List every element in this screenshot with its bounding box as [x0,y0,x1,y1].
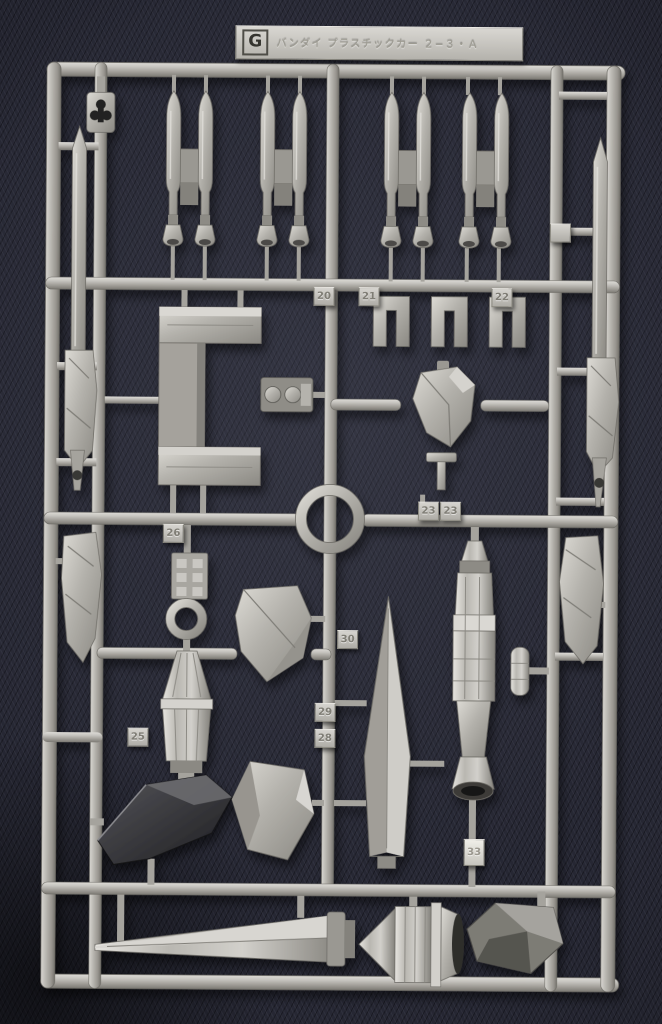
gate-tag-29: 29 [315,703,336,722]
gate-tag-23a: 23 [418,502,439,521]
runner-wrapper: G バンダイ プラスチックカー ２−３・Ａ 20 21 22 23 23 26 … [0,0,662,1024]
gate-tag-28: 28 [314,729,335,748]
gate-tag-26: 26 [163,524,184,543]
gate-tag-23b: 23 [440,502,461,521]
runner-embossed-text: バンダイ プラスチックカー ２−３・Ａ [276,35,479,51]
gate-tag-30: 30 [337,630,358,649]
gate-tag-33: 33 [464,839,485,866]
label-overlay: G バンダイ プラスチックカー ２−３・Ａ 20 21 22 23 23 26 … [0,0,662,1024]
gate-tag-25: 25 [127,728,148,747]
gate-tag-21: 21 [358,287,379,306]
runner-letter: G [242,29,268,55]
gate-tag-22: 22 [491,288,512,307]
gate-tag-blank [550,224,571,243]
photo-background: G バンダイ プラスチックカー ２−３・Ａ 20 21 22 23 23 26 … [0,0,662,1024]
runner-id-tag: G バンダイ プラスチックカー ２−３・Ａ [235,25,523,61]
gate-tag-20: 20 [313,287,334,306]
